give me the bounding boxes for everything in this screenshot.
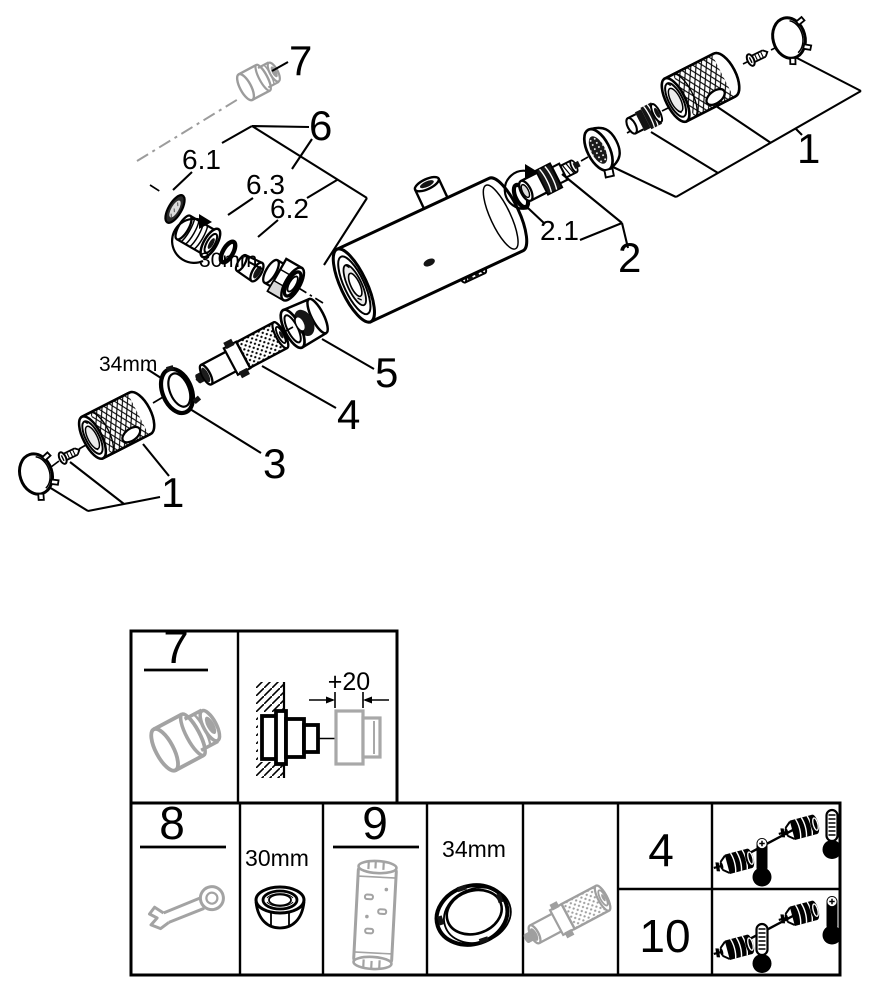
table-cell-quantity-top: 4: [648, 824, 674, 876]
table-cell-installation: +20: [256, 668, 389, 778]
socket-tool-icon: [353, 860, 397, 970]
mixer-body-group: [314, 149, 535, 327]
part1-right-label: 1: [797, 125, 820, 172]
handle-grip-1-left: [74, 388, 160, 463]
cell-nut-size-label: 30mm: [245, 845, 309, 871]
cell-qty4-label: 4: [648, 824, 674, 876]
thermostatic-cartridge-icon: [516, 879, 616, 956]
part1-left-label: 1: [161, 469, 184, 516]
part3-label: 3: [263, 440, 286, 487]
ring-size-label: 34mm: [99, 353, 157, 376]
table-cell-quantity-bottom: 10: [639, 910, 690, 962]
cartridge-mini-icon: [711, 934, 756, 964]
cell-ring-size-label: 34mm: [442, 836, 506, 862]
spare-parts-table: 7 +20 8: [131, 621, 842, 975]
handle-screw-left: [57, 444, 82, 465]
handle-screw-right: [745, 46, 770, 67]
cartridge-mini-icon: [776, 900, 821, 930]
handle-cap-left: [14, 448, 62, 504]
table-cell-cartridge: [516, 879, 616, 956]
extension-dimension-label: +20: [328, 668, 370, 696]
cartridge-mini-icon: [711, 848, 756, 878]
handle-grip-1-right: [656, 49, 745, 126]
part6-2-label: 6.2: [270, 193, 309, 224]
retaining-ring-3: [154, 359, 204, 417]
dimension-20: +20: [309, 668, 389, 708]
part6-1-label: 6.1: [182, 144, 221, 175]
table-cell-adapter: 7: [144, 621, 226, 774]
rotation-arrowhead-2: [525, 164, 538, 180]
part4-label: 4: [337, 391, 360, 438]
left-parts-chain: 5 4 3 34mm 1: [14, 295, 398, 516]
right-parts-chain: 2.1 2 1: [505, 13, 861, 281]
retaining-ring-icon: [428, 873, 518, 954]
cell-qty10-label: 10: [639, 910, 690, 962]
cell-socket-label: 9: [362, 797, 388, 849]
handle-cap-right: [768, 13, 815, 68]
nut-size-label: 30mm: [199, 249, 257, 272]
extension-adapter-icon: [146, 702, 226, 774]
table-cell-nut: 30mm: [245, 845, 309, 928]
nut-30mm-part: [257, 253, 308, 304]
part5-label: 5: [375, 349, 398, 396]
thermostat-cartridge-4: [187, 315, 294, 397]
thermometer-plus-icon: [753, 838, 772, 887]
part7-label: 7: [289, 37, 312, 84]
table-cell-temp-diagram-top: [711, 810, 841, 887]
group6-label: 6: [309, 102, 332, 149]
exploded-parts-drawing: 7: [0, 0, 882, 1000]
table-cell-socket-tool: 9: [333, 797, 419, 970]
cell-wrench-label: 8: [159, 797, 185, 849]
cell-adapter-label: 7: [163, 621, 189, 673]
exploded-parts-diagram-page: 7: [0, 0, 882, 1000]
table-cell-temp-diagram-bottom: [711, 896, 841, 973]
open-end-wrench-icon: [147, 885, 227, 930]
table-cell-wrench: 8: [140, 797, 226, 930]
table-cell-ring: 34mm: [428, 836, 518, 955]
extension-adapter-icon: [234, 57, 284, 102]
cartridge-mini-icon: [776, 814, 821, 844]
part2-label: 2: [618, 234, 641, 281]
wall-installation-icon: [262, 711, 380, 764]
thermometer-scale-icon: [753, 924, 772, 973]
part2-1-label: 2.1: [540, 215, 579, 246]
hex-nut-icon: [256, 887, 304, 928]
main-exploded-view: 7: [14, 13, 861, 516]
